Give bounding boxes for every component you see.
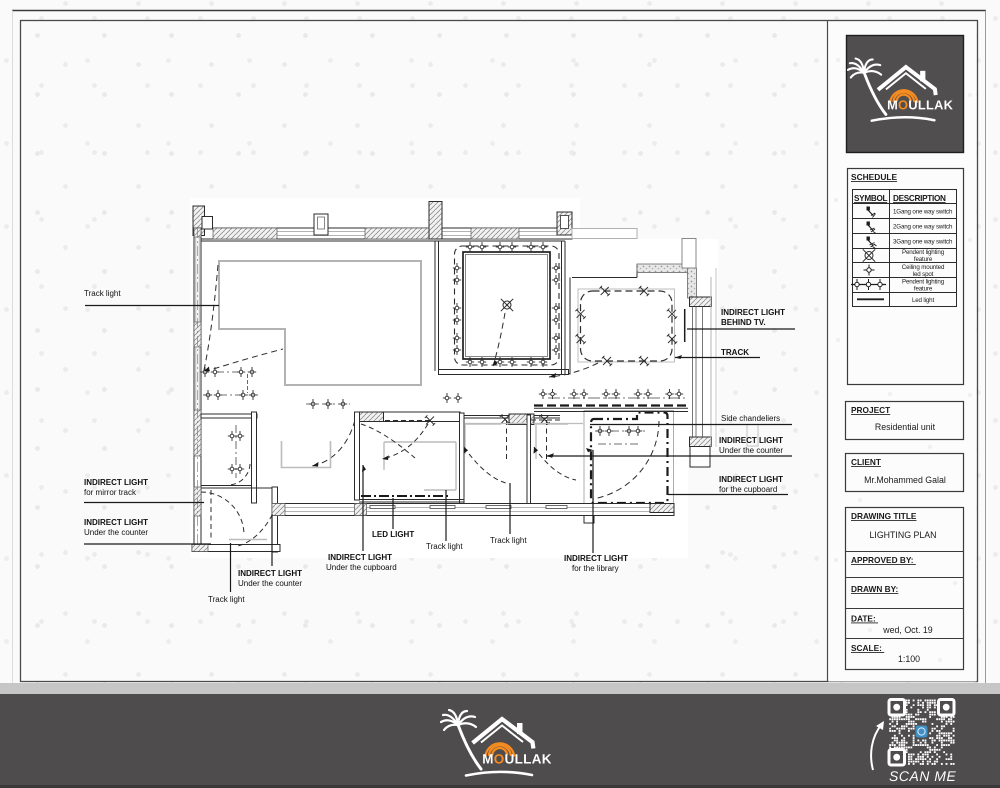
svg-text:INDIRECT LIGHT: INDIRECT LIGHT	[719, 436, 783, 445]
svg-text:for the cupboard: for the cupboard	[719, 485, 777, 494]
svg-text:DESCRIPTION: DESCRIPTION	[893, 194, 946, 203]
svg-text:PROJECT: PROJECT	[851, 405, 890, 415]
svg-text:Led light: Led light	[912, 297, 934, 304]
svg-text:Residential unit: Residential unit	[875, 422, 936, 432]
svg-text:Ceiling mounted: Ceiling mounted	[902, 264, 945, 271]
svg-text:SCHEDULE: SCHEDULE	[851, 172, 897, 182]
svg-text:BEHIND TV.: BEHIND TV.	[721, 318, 766, 327]
svg-text:DRAWING TITLE: DRAWING TITLE	[851, 511, 917, 521]
svg-text:INDIRECT LIGHT: INDIRECT LIGHT	[719, 475, 783, 484]
svg-text:INDIRECT LIGHT: INDIRECT LIGHT	[84, 478, 148, 487]
svg-text:feature: feature	[914, 286, 933, 293]
svg-text:INDIRECT LIGHT: INDIRECT LIGHT	[721, 308, 785, 317]
svg-text:Mr.Mohammed Galal: Mr.Mohammed Galal	[864, 475, 946, 485]
svg-text:Track light: Track light	[84, 289, 121, 298]
svg-text:1:100: 1:100	[898, 654, 920, 664]
svg-text:for mirror track: for mirror track	[84, 488, 137, 497]
svg-text:INDIRECT LIGHT: INDIRECT LIGHT	[328, 553, 392, 562]
svg-text:CLIENT: CLIENT	[851, 457, 881, 467]
svg-text:for the library: for the library	[572, 564, 619, 573]
svg-text:Pendent lighting: Pendent lighting	[902, 279, 945, 286]
svg-text:LED LIGHT: LED LIGHT	[372, 530, 414, 539]
svg-text:Under the counter: Under the counter	[84, 528, 148, 537]
svg-text:1Gang one way switch: 1Gang one way switch	[893, 209, 953, 216]
svg-text:2Gang one way switch: 2Gang one way switch	[893, 224, 953, 231]
svg-text:Track light: Track light	[490, 536, 527, 545]
svg-text:led spot: led spot	[913, 271, 934, 278]
svg-text:3Gang one way switch: 3Gang one way switch	[893, 239, 953, 246]
svg-text:INDIRECT LIGHT: INDIRECT LIGHT	[84, 518, 148, 527]
svg-text:Side chandeliers: Side chandeliers	[721, 414, 780, 423]
svg-text:Under the counter: Under the counter	[719, 446, 783, 455]
svg-text:SYMBOL: SYMBOL	[854, 194, 888, 203]
svg-text:DATE:: DATE:	[851, 614, 878, 624]
svg-text:INDIRECT LIGHT: INDIRECT LIGHT	[238, 569, 302, 578]
svg-text:Track light: Track light	[426, 542, 463, 551]
svg-text:Under the counter: Under the counter	[238, 579, 302, 588]
svg-text:INDIRECT LIGHT: INDIRECT LIGHT	[564, 554, 628, 563]
svg-text:Under the cupboard: Under the cupboard	[326, 563, 397, 572]
svg-text:LIGHTING PLAN: LIGHTING PLAN	[870, 530, 937, 540]
svg-text:wed, Oct. 19: wed, Oct. 19	[882, 625, 932, 635]
svg-text:Track light: Track light	[208, 595, 245, 604]
svg-text:APPROVED BY:: APPROVED BY:	[851, 555, 916, 565]
svg-text:TRACK: TRACK	[721, 348, 749, 357]
svg-text:SCALE:: SCALE:	[851, 643, 884, 653]
svg-text:Pendent lighting: Pendent lighting	[902, 249, 945, 256]
svg-text:feature: feature	[914, 256, 933, 263]
svg-text:DRAWN BY:: DRAWN BY:	[851, 584, 898, 594]
